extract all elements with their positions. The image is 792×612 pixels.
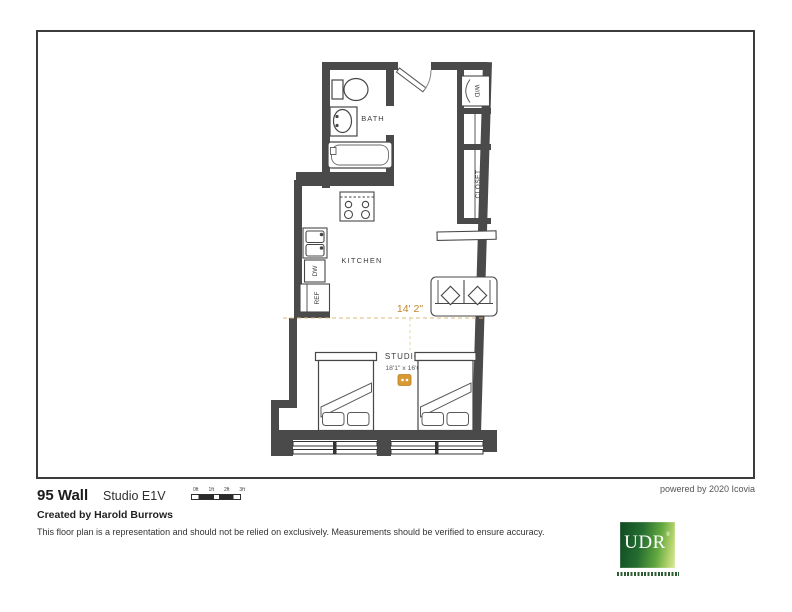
udr-logo-square: UDR® [620, 522, 675, 568]
bed-pillow [447, 413, 469, 426]
width-dimension-label: 14' 2" [397, 303, 423, 315]
toilet-bowl [344, 79, 368, 101]
faucet-dot [320, 233, 322, 235]
wall-segment [483, 430, 497, 452]
sink-basin [306, 231, 324, 243]
bed [316, 353, 377, 431]
wall-segment [271, 430, 293, 456]
kitchen-label: KITCHEN [341, 256, 382, 265]
door-leaf [396, 68, 425, 92]
bath-label: BATH [361, 114, 384, 123]
scale-bar [191, 494, 241, 500]
bed-headboard [316, 353, 377, 361]
wall-segment [386, 62, 394, 106]
created-by-text: Created by Harold Burrows [37, 509, 173, 521]
washer-dryer-label: W/D [473, 85, 480, 98]
wall-segment [377, 430, 391, 456]
wall-segment [457, 144, 491, 150]
fixture-marker-icon [398, 375, 411, 386]
udr-logo: UDR® [617, 522, 679, 576]
bed [415, 353, 476, 431]
bath-sink-basin [334, 110, 352, 133]
bed-headboard [415, 353, 476, 361]
burner [345, 201, 351, 207]
console-shelf [437, 231, 496, 241]
property-name: 95 Wall [37, 487, 88, 504]
bed-pillow [323, 413, 345, 426]
faucet-dot [336, 125, 338, 127]
burner [345, 211, 353, 219]
kitchen [300, 192, 374, 312]
powered-by-text: powered by 2020 Icovia [555, 484, 755, 494]
window-mullion [334, 442, 337, 455]
disclaimer-text: This floor plan is a representation and … [37, 527, 544, 537]
burner [362, 211, 370, 219]
dishwasher-label: DW [312, 265, 319, 277]
sink-basin [306, 245, 324, 257]
bed-pillow [422, 413, 444, 426]
unit-name: Studio E1V [103, 489, 166, 503]
registered-mark: ® [666, 532, 671, 538]
toilet-tank [332, 80, 343, 99]
bathroom [328, 79, 392, 169]
wall-segment [431, 62, 487, 70]
wall-segment [457, 218, 491, 224]
udr-logo-text: UDR® [624, 532, 671, 554]
wall-segment [296, 172, 394, 186]
scale-label: 3ft [239, 487, 245, 493]
faucet-dot [320, 247, 322, 249]
tub-faucet [331, 148, 337, 155]
refrigerator-label: REF [314, 291, 321, 304]
bed-pillow [348, 413, 370, 426]
wall-segment [289, 318, 297, 408]
window-mullion [436, 442, 439, 455]
scale-label: 0ft [193, 487, 199, 493]
faucet-dot [336, 116, 338, 118]
scale-widget: 0ft 1ft 2ft 3ft [191, 487, 247, 500]
udr-tagline [617, 572, 679, 576]
dimension-lines [283, 318, 486, 350]
closet-label: CLOSET [475, 169, 482, 198]
bathtub-inner [332, 145, 389, 165]
scale-label: 2ft [224, 487, 230, 493]
wall-segment [322, 62, 330, 188]
burner [362, 201, 368, 207]
scale-label: 1ft [208, 487, 214, 493]
scale-labels: 0ft 1ft 2ft 3ft [193, 487, 245, 493]
entry-door [396, 68, 431, 92]
wall-segment [457, 108, 491, 114]
living-area [431, 231, 497, 316]
